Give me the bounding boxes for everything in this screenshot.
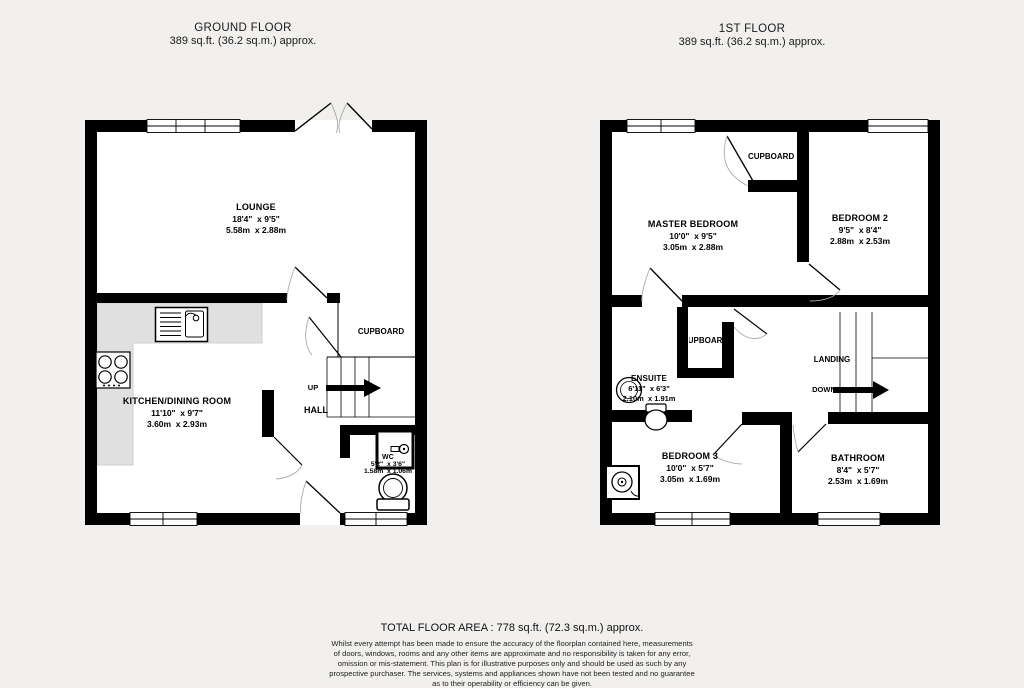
first-cupboard-mid-label: CUPBOARD [689,336,731,345]
bathroom-label: BATHROOM 8'4" x 5'7" 2.53m x 1.69m [828,453,888,486]
washer-icon [606,466,640,499]
cupboard-top-text: CUPBOARD [748,152,794,161]
wall-segment [809,295,928,307]
first-cupboard-top-label: CUPBOARD [748,152,794,161]
master-bedroom-name: MASTER BEDROOM [648,219,738,229]
kitchen-name: KITCHEN/DINING ROOM [123,396,231,406]
wall-segment [85,513,130,525]
master-bedroom-imperial: 10'0" x 9'5" [648,231,738,241]
wall-segment [742,412,792,425]
wall-segment [828,412,928,424]
footer: TOTAL FLOOR AREA : 778 sq.ft. (72.3 sq.m… [152,622,872,688]
disclaimer-line: prospective purchaser. The services, sys… [152,669,872,679]
wc-metric: 1.58m x 1.06m [364,468,412,475]
ground-floor-area: 389 sq.ft. (36.2 sq.m.) approx. [170,35,317,47]
ensuite-imperial: 6'11" x 6'3" [623,384,676,393]
disclaimer: Whilst every attempt has been made to en… [152,639,872,688]
wall-segment [262,390,274,437]
ensuite-name: ENSUITE [623,374,676,383]
landing-label: LANDING [814,355,850,364]
bathroom-metric: 2.53m x 1.69m [828,476,888,486]
disclaimer-line: as to their operability or efficiency ca… [152,679,872,688]
floorplan-drawing [0,0,1024,688]
ensuite-label: ENSUITE 6'11" x 6'3" 2.10m x 1.91m [623,374,676,403]
lounge-name: LOUNGE [226,202,286,212]
master-bedroom-metric: 3.05m x 2.88m [648,242,738,252]
wall-segment [612,295,642,307]
wall-segment [682,295,809,307]
ground-cupboard-label: CUPBOARD [358,327,404,336]
floorplan-page: GROUND FLOOR 389 sq.ft. (36.2 sq.m.) app… [0,0,1024,688]
wall-segment [928,120,940,525]
ground-floor-header: GROUND FLOOR 389 sq.ft. (36.2 sq.m.) app… [170,22,317,47]
disclaimer-line: Whilst every attempt has been made to en… [152,639,872,649]
wall-segment [797,132,809,262]
bedroom2-name: BEDROOM 2 [830,213,890,223]
lounge-imperial: 18'4" x 9'5" [226,214,286,224]
cupboard-mid-text: CUPBOARD [689,336,728,345]
total-floor-area: TOTAL FLOOR AREA : 778 sq.ft. (72.3 sq.m… [152,622,872,634]
wc-name: WC [364,454,412,461]
wall-segment [600,513,940,525]
wall-segment [340,425,350,458]
disclaimer-line: omission or mis-statement. This plan is … [152,659,872,669]
bedroom3-label: BEDROOM 3 10'0" x 5'7" 3.05m x 1.69m [660,451,720,484]
lounge-metric: 5.58m x 2.88m [226,225,286,235]
wall-segment [97,293,287,303]
wall-segment [722,322,734,378]
kitchen-metric: 3.60m x 2.93m [123,419,231,429]
wall-segment [340,513,345,525]
kitchen-imperial: 11'10" x 9'7" [123,408,231,418]
bedroom2-label: BEDROOM 2 9'5" x 8'4" 2.88m x 2.53m [830,213,890,246]
first-floor-area: 389 sq.ft. (36.2 sq.m.) approx. [679,36,826,48]
hob-icon [96,352,130,388]
bedroom3-name: BEDROOM 3 [660,451,720,461]
bedroom2-imperial: 9'5" x 8'4" [830,225,890,235]
first-floor-plan [600,120,940,526]
bedroom2-metric: 2.88m x 2.53m [830,236,890,246]
first-floor-title: 1ST FLOOR [679,23,826,35]
wall-segment [407,513,427,525]
wall-segment [327,293,340,303]
disclaimer-line: of doors, windows, rooms and any other i… [152,649,872,659]
master-bedroom-label: MASTER BEDROOM 10'0" x 9'5" 3.05m x 2.88… [648,219,738,252]
wall-segment [748,180,809,192]
wall-segment [197,513,300,525]
bathroom-name: BATHROOM [828,453,888,463]
wc-imperial: 5'2" x 3'6" [364,461,412,468]
up-label: UP [308,383,318,392]
wc-label: WC 5'2" x 3'6" 1.58m x 1.06m [364,454,412,475]
wall-segment [600,120,612,525]
wall-segment [677,307,688,378]
ground-floor-title: GROUND FLOOR [170,22,317,34]
hall-label: HALL [304,405,328,415]
ensuite-toilet-icon [645,404,667,430]
first-floor-header: 1ST FLOOR 389 sq.ft. (36.2 sq.m.) approx… [679,23,826,48]
bedroom3-metric: 3.05m x 1.69m [660,474,720,484]
wall-segment [415,120,427,525]
ensuite-metric: 2.10m x 1.91m [623,394,676,403]
bedroom3-imperial: 10'0" x 5'7" [660,463,720,473]
kitchen-label: KITCHEN/DINING ROOM 11'10" x 9'7" 3.60m … [123,396,231,429]
wall-segment [780,425,792,513]
down-label: DOWN [812,385,836,394]
sink-icon [156,308,208,342]
bathroom-imperial: 8'4" x 5'7" [828,465,888,475]
toilet-icon [377,474,409,510]
lounge-label: LOUNGE 18'4" x 9'5" 5.58m x 2.88m [226,202,286,235]
wall-segment [85,120,97,525]
